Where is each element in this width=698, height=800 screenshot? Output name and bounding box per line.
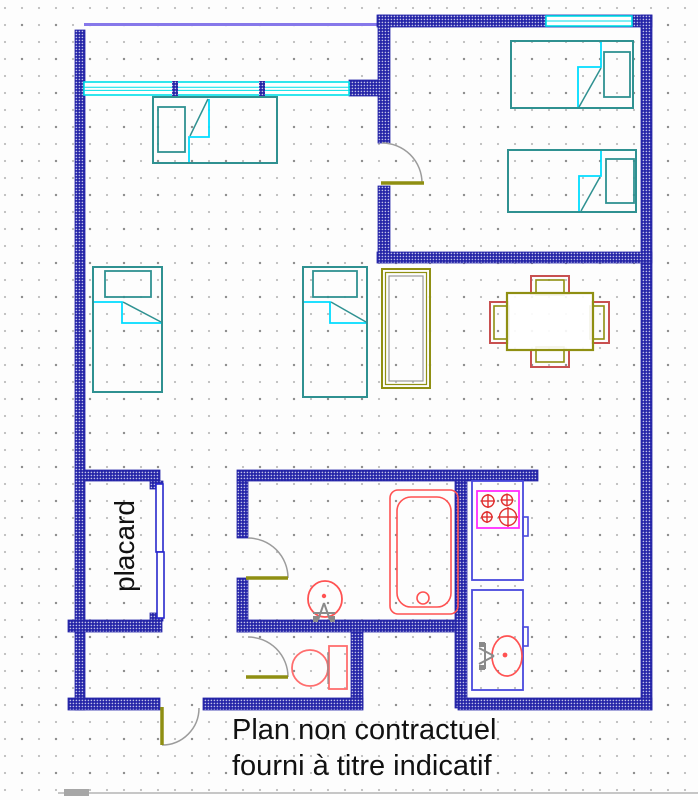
door-bathroom	[246, 538, 288, 578]
wall-bottom-mid	[203, 698, 363, 710]
door-entrance	[162, 707, 199, 745]
closet-label: placard	[109, 491, 141, 601]
window-mullion	[172, 81, 178, 96]
bed-bedroom-upper	[511, 41, 633, 108]
window-band-left	[84, 81, 349, 96]
toilet	[292, 646, 347, 689]
dining-set	[490, 276, 609, 367]
window-mullion	[259, 81, 265, 96]
wall-bathroom-left-upper	[237, 481, 248, 538]
pillow	[105, 271, 151, 297]
door-arc	[248, 538, 288, 578]
fold-diagonal	[190, 99, 208, 136]
drain	[417, 592, 429, 604]
wall-divider-upper	[378, 15, 390, 143]
closet-door-panel	[157, 552, 164, 618]
closet-door-panel	[156, 484, 163, 552]
toilet-tank	[329, 646, 347, 689]
caption-line-1: Plan non contractuel	[232, 713, 496, 748]
bidet	[308, 581, 342, 622]
wall-divider-lower	[378, 186, 390, 263]
kitchen	[472, 481, 528, 690]
unit-handle	[523, 517, 528, 536]
balcony-edge-line	[84, 23, 380, 26]
pillow	[158, 107, 185, 152]
door-arc	[162, 708, 199, 745]
wall-window-end-block	[349, 80, 380, 96]
wall-mid-horizontal	[377, 252, 652, 263]
blanket-fold	[304, 302, 366, 323]
wall-bottom-left	[68, 698, 160, 710]
pillow	[606, 159, 634, 203]
door-bedroom-right	[381, 143, 424, 183]
floor-plan-drawing	[0, 0, 698, 800]
wardrobe	[382, 269, 430, 388]
wall-bathroom-bottom	[237, 620, 463, 632]
pillow	[604, 52, 630, 97]
kitchen-unit-stove	[472, 481, 523, 580]
wall-placard-top	[84, 470, 160, 481]
floor-plan: placard Plan non contractuel fourni à ti…	[0, 0, 698, 800]
bed-living-right	[303, 267, 367, 397]
fold-diagonal	[123, 302, 161, 322]
bed-living-top	[153, 97, 277, 163]
burners	[481, 494, 518, 528]
wall-bathroom-top	[237, 470, 538, 481]
wall-kitchen-left	[455, 481, 467, 708]
door-arc	[248, 637, 288, 677]
closet-sliding-doors	[156, 484, 164, 618]
caption-line-2: fourni à titre indicatif	[232, 749, 492, 784]
door-arc	[382, 143, 422, 183]
window-top-right	[546, 16, 632, 26]
fold-diagonal	[581, 177, 600, 211]
wall-left-outer	[75, 30, 85, 710]
wall-placard-bottom	[68, 620, 162, 632]
bathtub	[390, 490, 458, 614]
wall-bottom-right	[458, 698, 652, 710]
fold-diagonal	[331, 302, 366, 322]
pillow	[313, 271, 357, 297]
bed-bedroom-lower	[508, 150, 636, 212]
wall-right-outer	[641, 15, 652, 710]
wall-wc-right	[351, 632, 363, 708]
dining-table	[507, 293, 593, 350]
scrollbar-thumb[interactable]	[64, 789, 89, 796]
scrollbar-track[interactable]	[58, 792, 698, 794]
unit-handle	[523, 627, 528, 646]
toilet-bowl	[292, 650, 328, 686]
bed-living-left	[93, 267, 162, 392]
fold-diagonal	[579, 68, 601, 107]
bidet-faucet	[313, 603, 335, 622]
door-wc	[246, 637, 288, 677]
